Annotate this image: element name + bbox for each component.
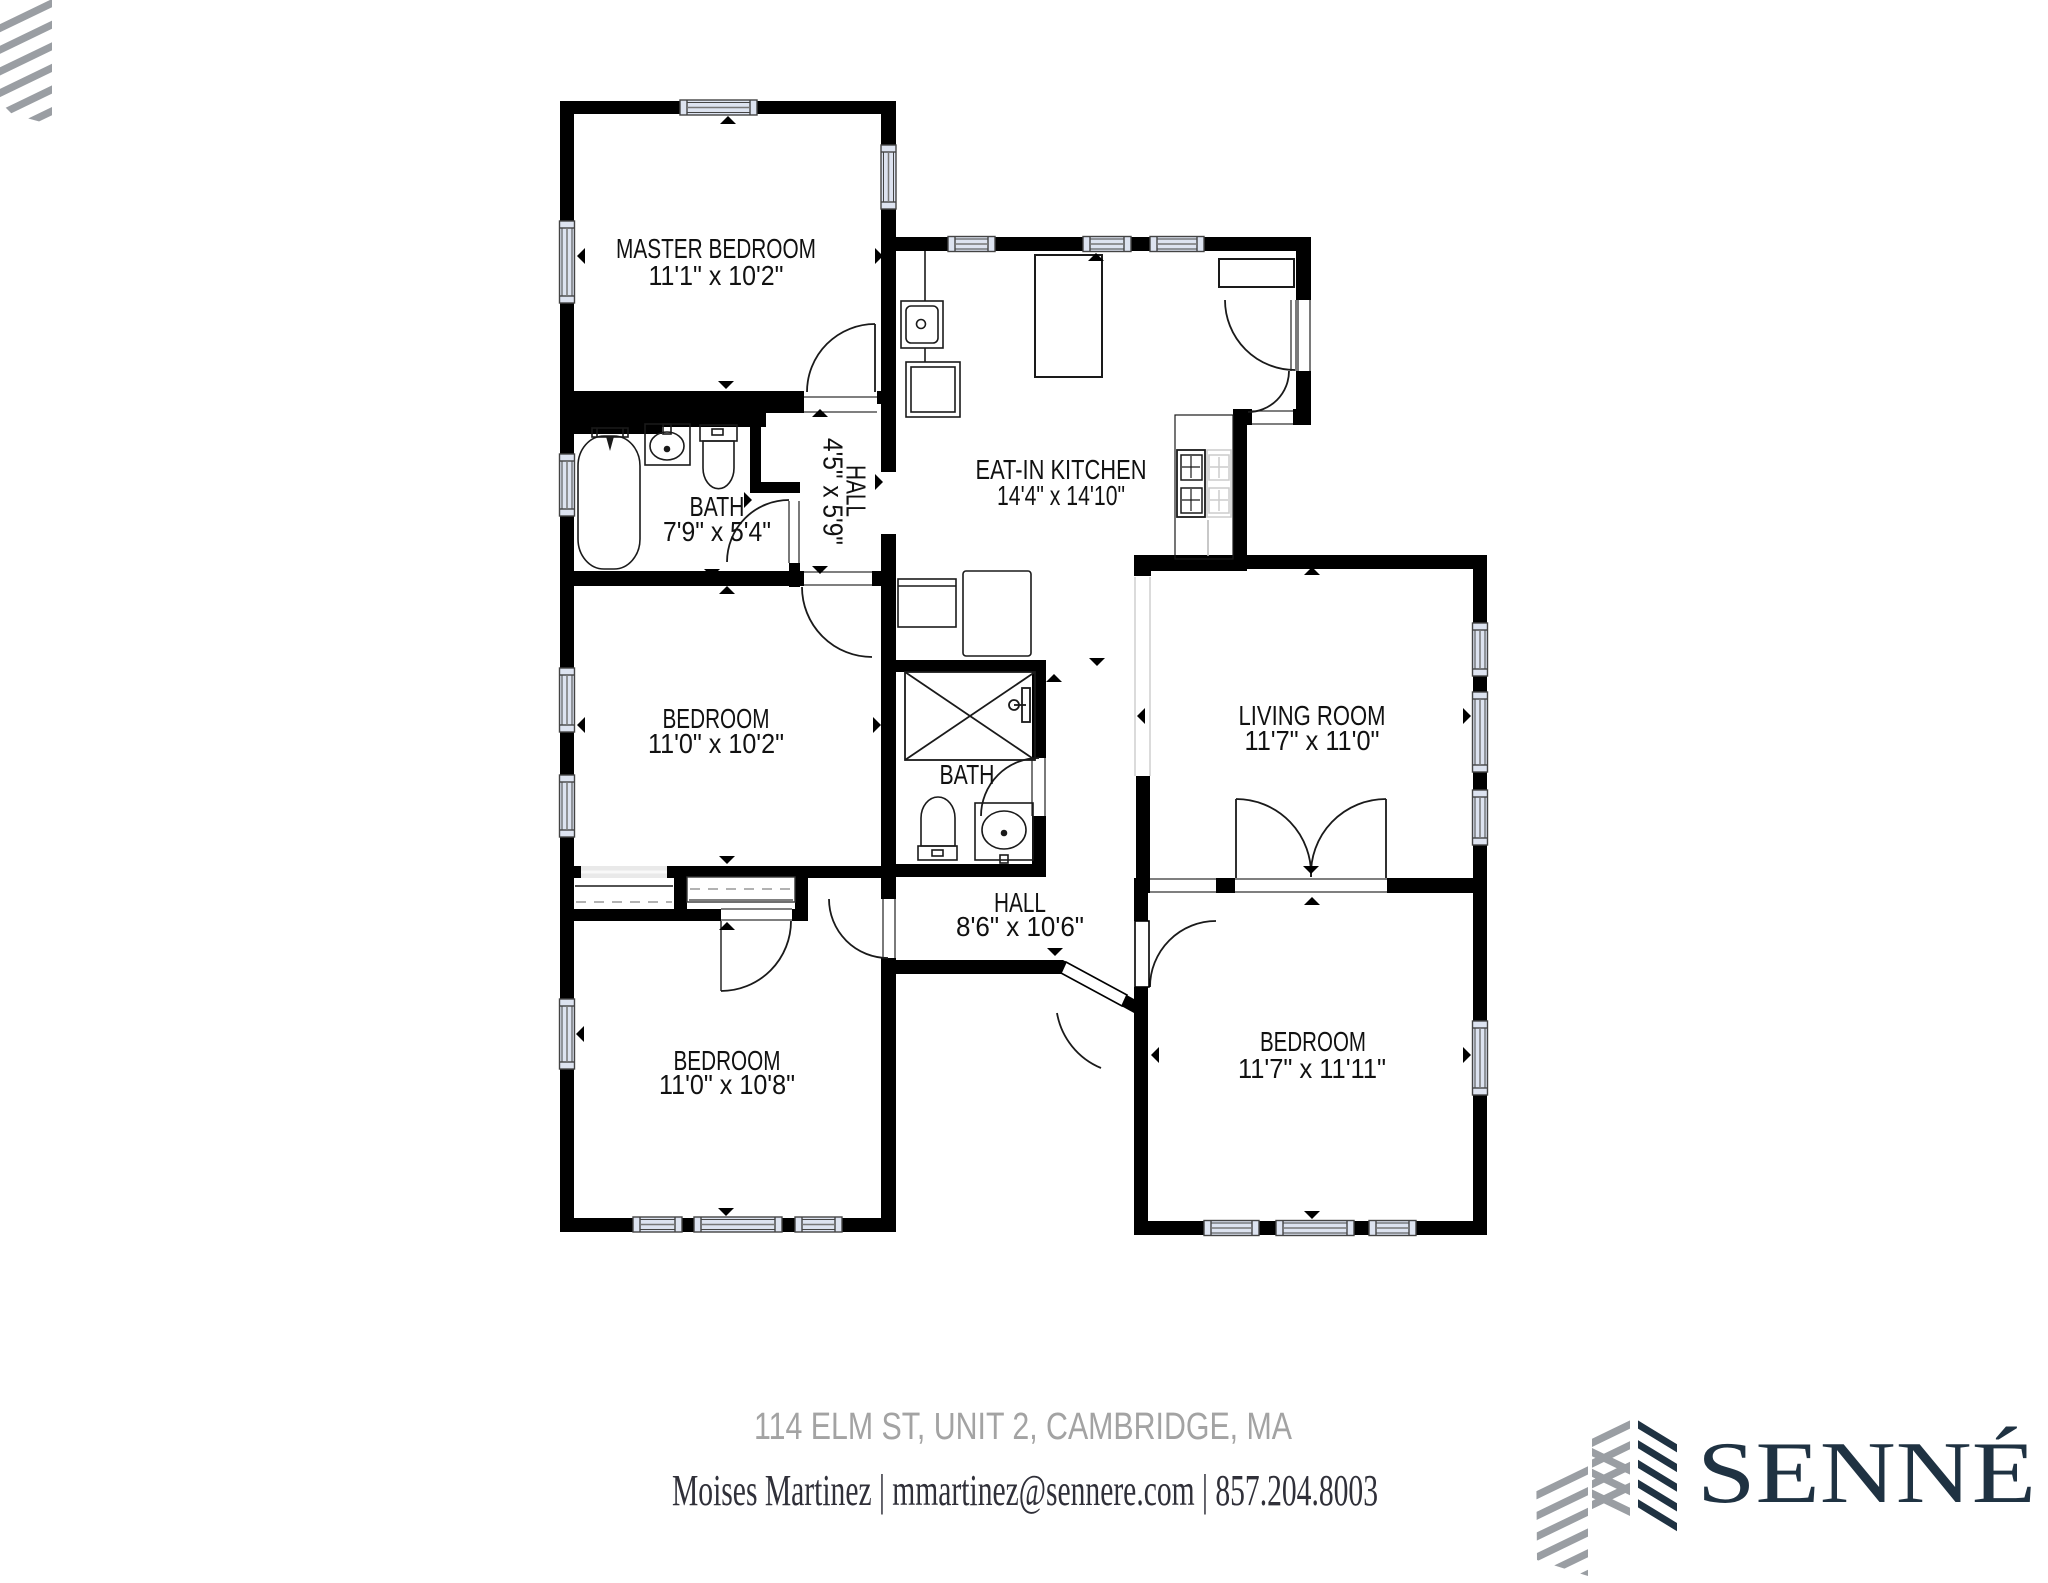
svg-text:11'7" x 11'0": 11'7" x 11'0" bbox=[1245, 725, 1380, 756]
svg-text:11'0" x 10'2": 11'0" x 10'2" bbox=[648, 728, 784, 759]
svg-text:14'4" x 14'10": 14'4" x 14'10" bbox=[997, 480, 1125, 511]
svg-text:11'0" x 10'8": 11'0" x 10'8" bbox=[659, 1069, 795, 1100]
svg-text:SENNÉ: SENNÉ bbox=[1697, 1425, 2036, 1522]
svg-text:8'6" x 10'6": 8'6" x 10'6" bbox=[956, 911, 1084, 942]
svg-text:114 ELM ST, UNIT 2, CAMBRIDGE,: 114 ELM ST, UNIT 2, CAMBRIDGE, MA bbox=[754, 1406, 1293, 1448]
svg-text:11'1" x 10'2": 11'1" x 10'2" bbox=[649, 260, 784, 291]
svg-text:11'7" x 11'11": 11'7" x 11'11" bbox=[1238, 1053, 1386, 1084]
svg-text:BATH: BATH bbox=[940, 759, 995, 790]
svg-text:4'5" x 5'9": 4'5" x 5'9" bbox=[818, 438, 849, 545]
svg-text:7'9" x 5'4": 7'9" x 5'4" bbox=[663, 516, 771, 547]
svg-text:Moises Martinez | mmartinez@se: Moises Martinez | mmartinez@sennere.com … bbox=[672, 1466, 1378, 1515]
